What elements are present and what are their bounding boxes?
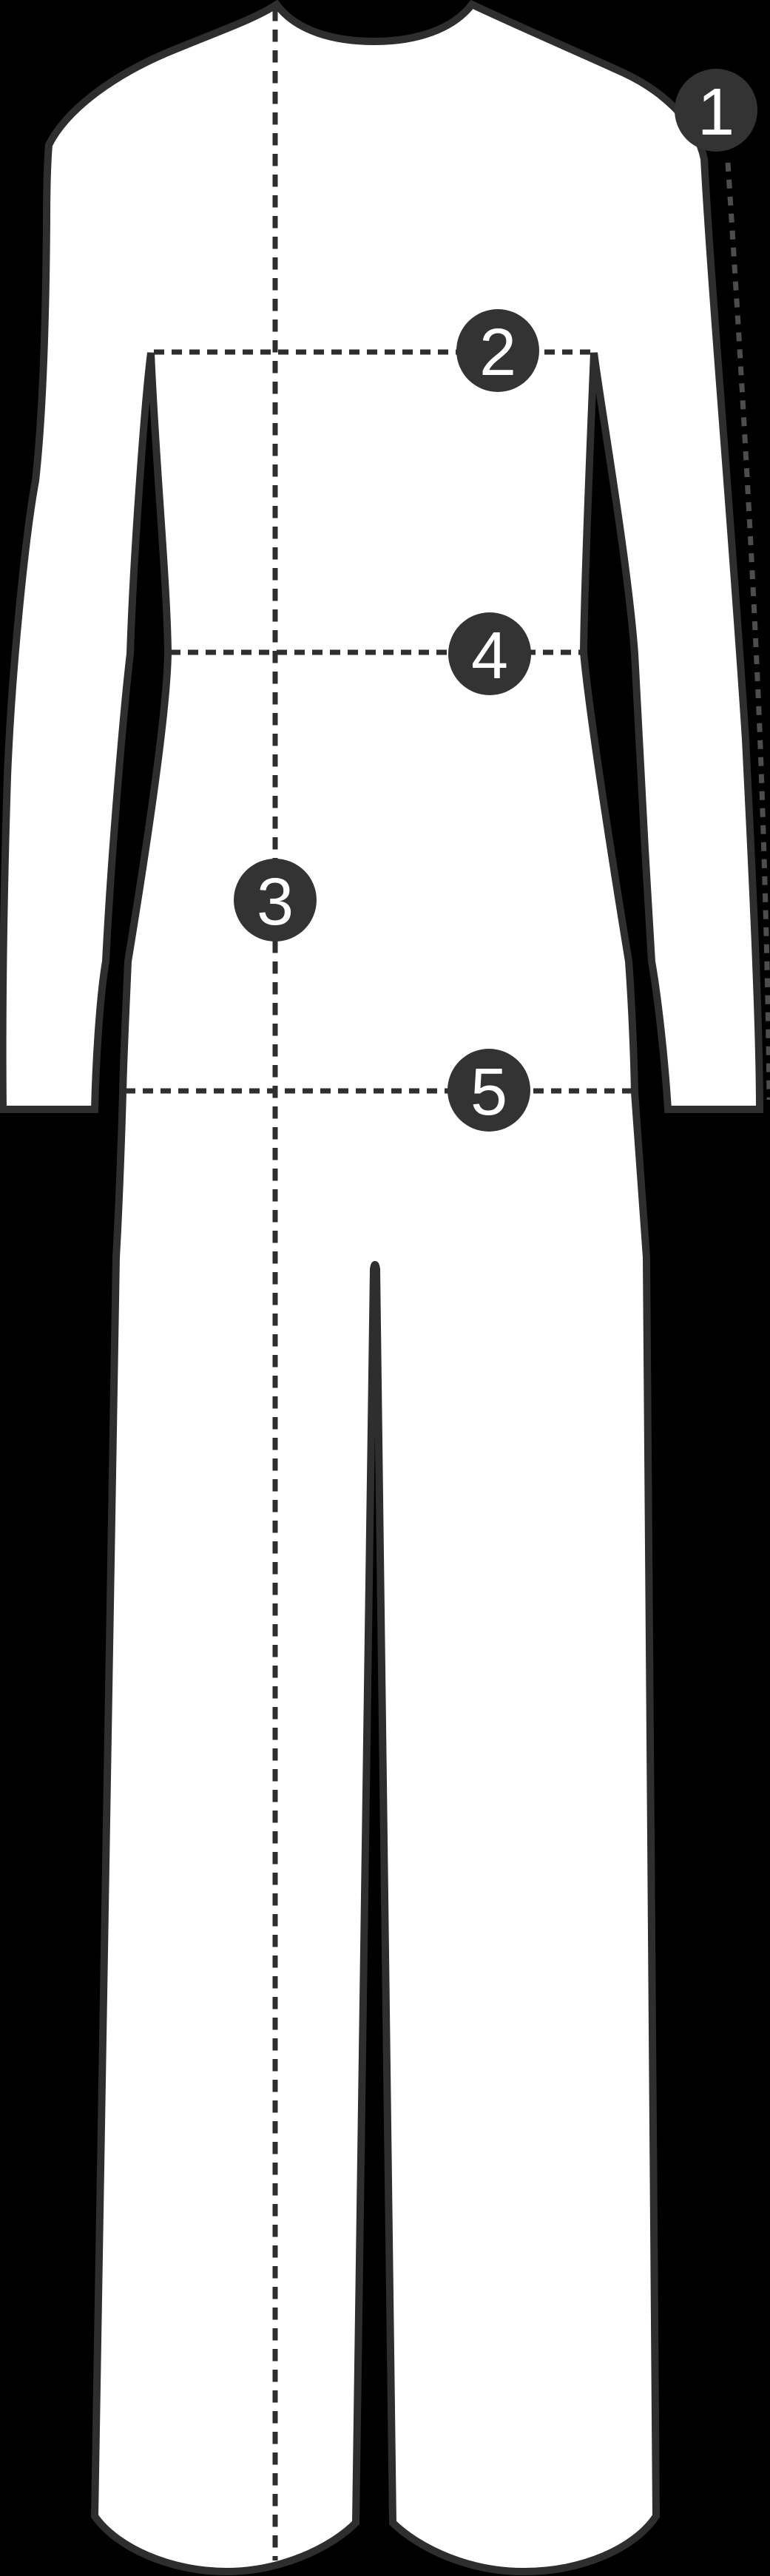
measure-marker-5: 5 (448, 1049, 530, 1132)
measure-marker-2: 2 (456, 309, 539, 392)
measure-marker-1: 1 (675, 69, 757, 152)
measure-marker-3: 3 (234, 859, 317, 942)
size-guide-stage: 1 2 3 4 5 (0, 0, 770, 2576)
measure-marker-4: 4 (448, 612, 531, 695)
garment-outline (3, 4, 760, 2572)
jumpsuit-measurement-diagram: 1 2 3 4 5 (0, 0, 770, 2576)
marker-3-number: 3 (257, 865, 294, 939)
marker-4-number: 4 (471, 619, 508, 693)
marker-5-number: 5 (470, 1055, 507, 1129)
marker-2-number: 2 (479, 316, 516, 390)
marker-1-number: 1 (698, 75, 734, 149)
